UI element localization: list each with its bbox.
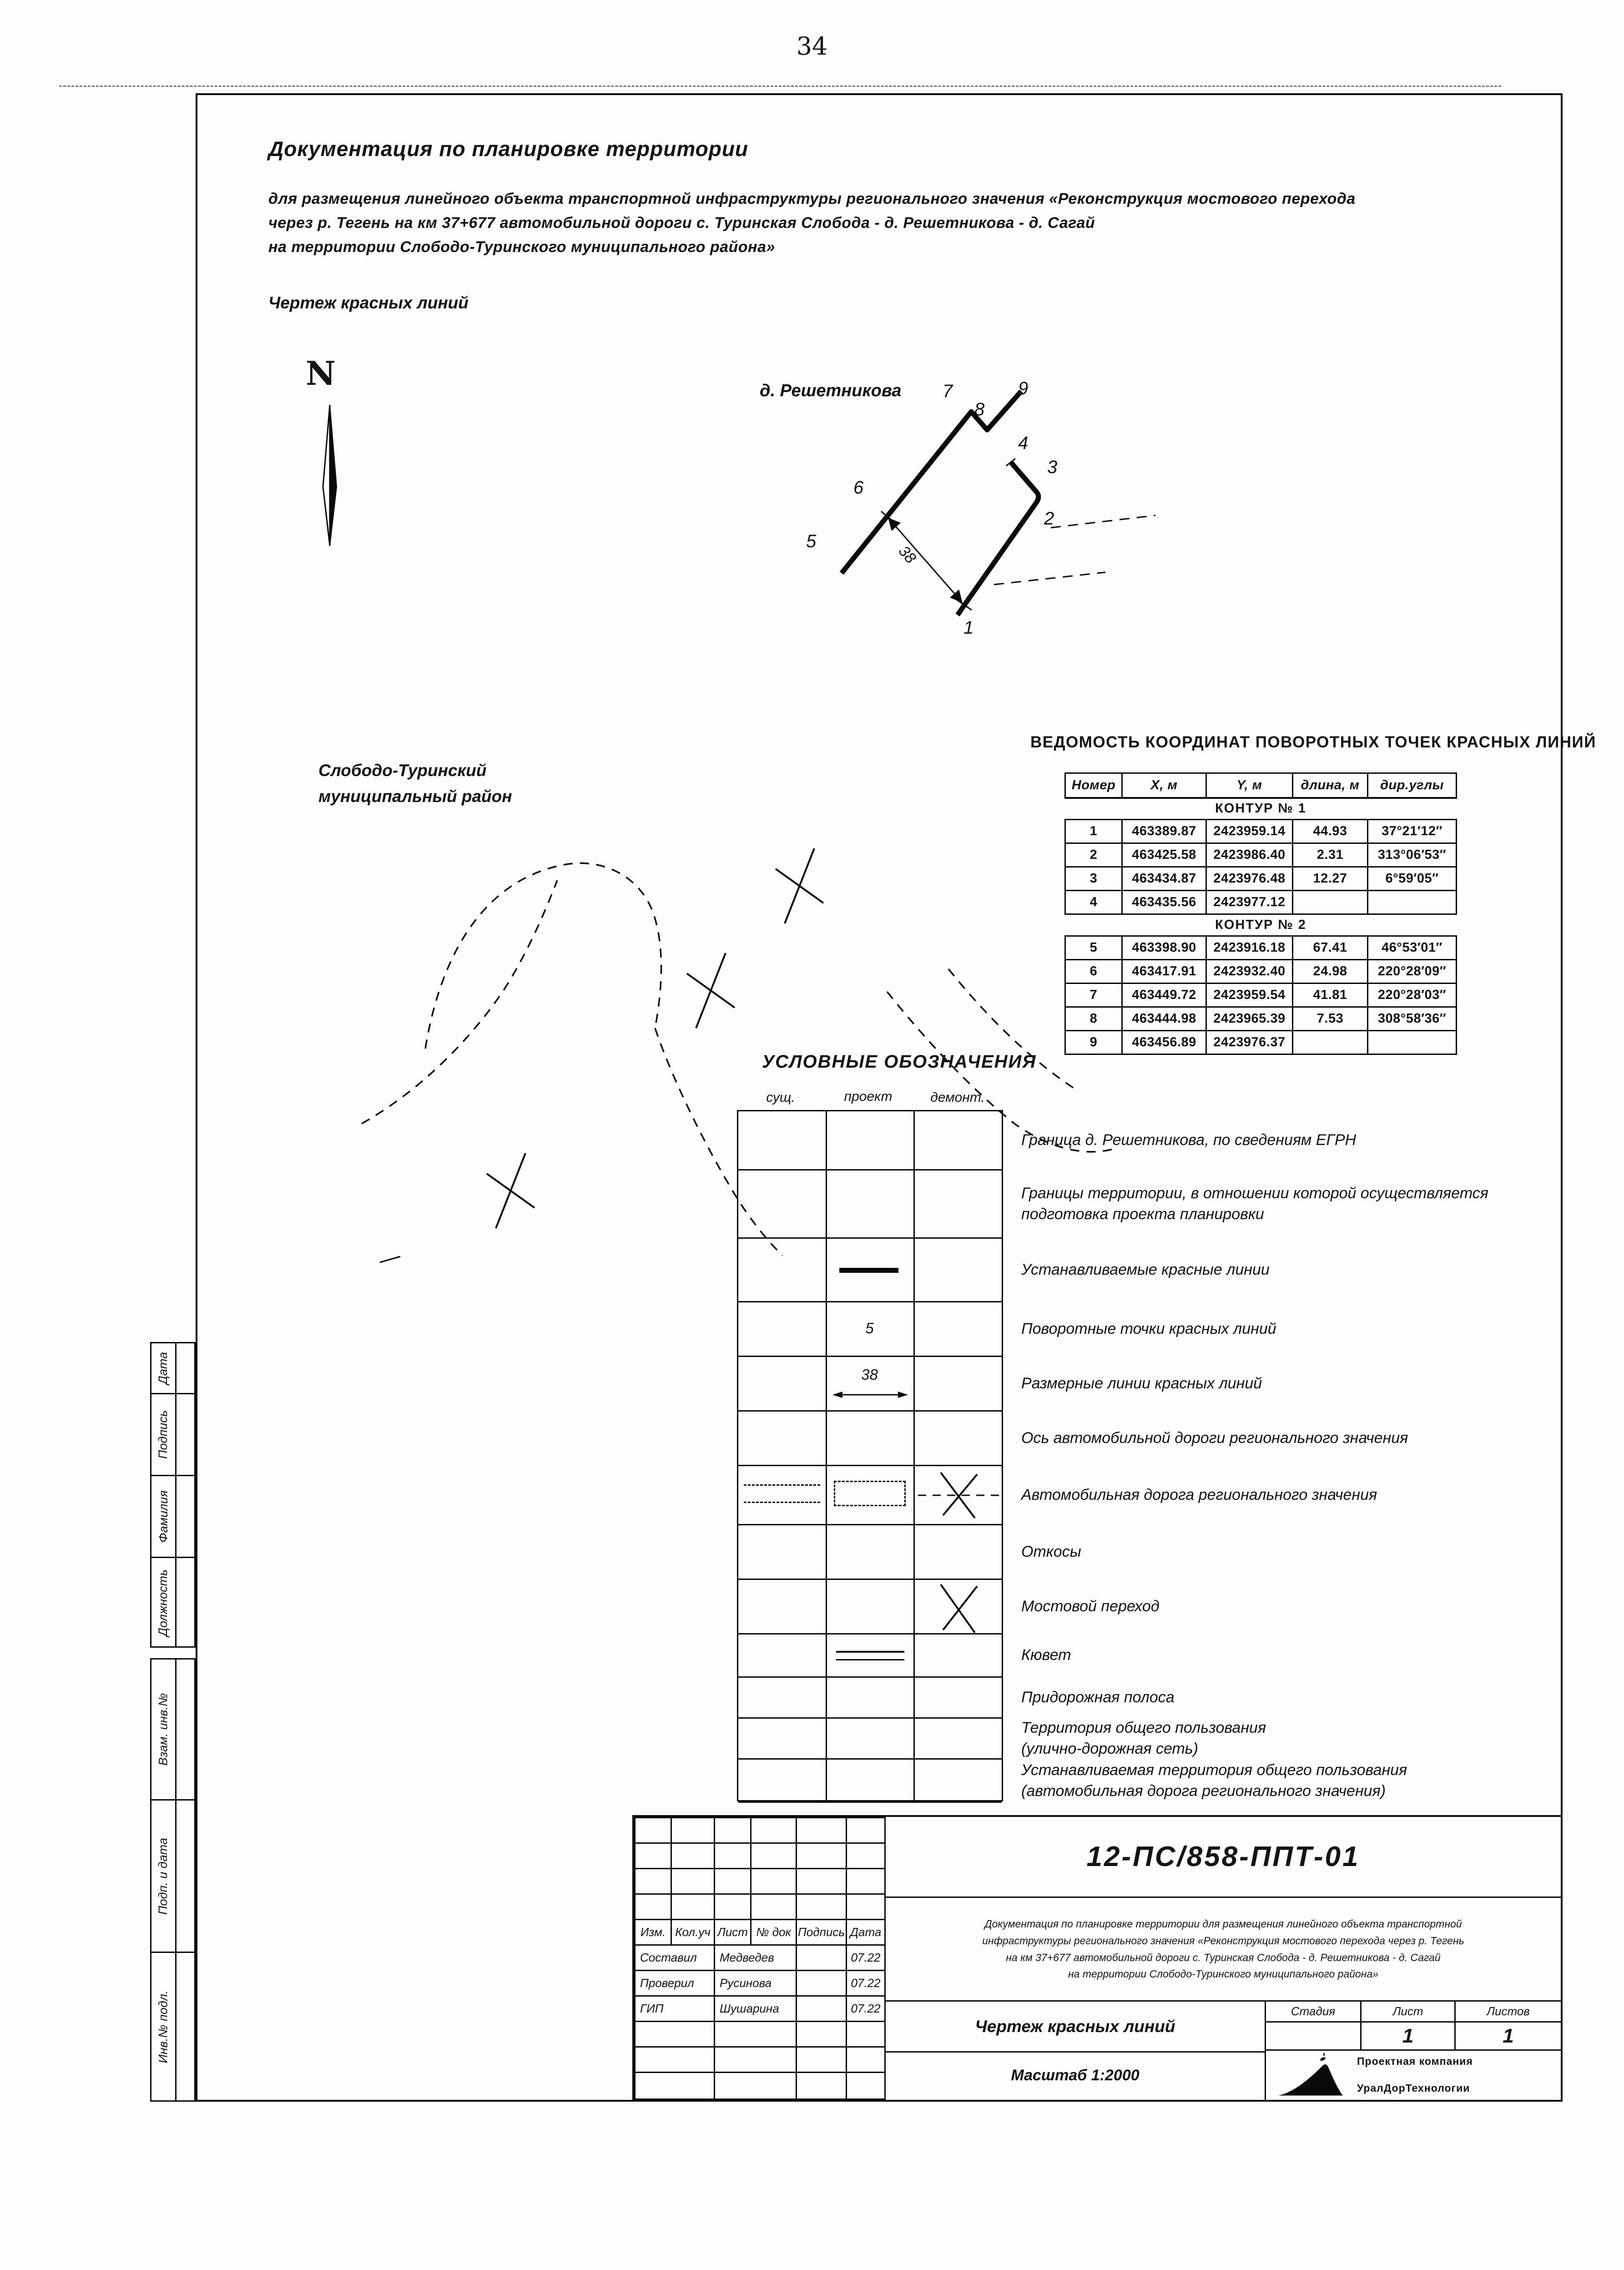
document-subtitle-line2: через р. Тегень на км 37+677 автомобильн…: [268, 214, 1095, 232]
stamp-drawing-title-wrap: Чертеж красных линий: [886, 2002, 1265, 2053]
cell: [1293, 891, 1368, 914]
cell: 8: [1065, 1007, 1122, 1031]
cell: 2423916.18: [1206, 936, 1293, 960]
table-row: 7 463449.72 2423959.54 41.81 220°28′03″: [1065, 984, 1457, 1007]
drawing-name: Чертеж красных линий: [268, 293, 469, 313]
district-label-line1: Слободо-Туринский: [318, 757, 512, 783]
road-existing-symbol-bottom: [744, 1502, 820, 1503]
point-label-9: 9: [1018, 378, 1028, 399]
ditch-symbol-top: [836, 1651, 904, 1653]
sidebar-cell: Взам. инв.№: [151, 1660, 175, 1799]
legend-grid-row: [738, 1412, 1002, 1466]
legend-grid-row: [738, 1634, 1002, 1678]
stage-values-row: 1 1: [1266, 2023, 1561, 2051]
legend-label: Придорожная полоса: [1021, 1687, 1175, 1708]
legend-label-line1: Устанавливаемая территория общего пользо…: [1021, 1760, 1407, 1781]
boundary-dashed-line-2: [994, 572, 1105, 585]
rev-header-list: Лист: [715, 1920, 751, 1945]
empty-row: [635, 1869, 885, 1894]
sheet-header: Лист: [1360, 2002, 1454, 2021]
turn-point-symbol: 5: [826, 1320, 913, 1337]
cell: 6°59′05″: [1368, 867, 1457, 891]
cell: 1: [1065, 820, 1122, 843]
road-dashed-2: [362, 880, 557, 1124]
document-sheet: 34 Документация по планировке территории…: [0, 0, 1624, 2270]
company-line1: Проектная компания: [1357, 2055, 1473, 2068]
point-label-2: 2: [1044, 509, 1054, 529]
cell: 463417.91: [1122, 960, 1206, 984]
sidebar-row-date: Дата: [151, 1343, 194, 1394]
contour-1-section-row: КОНТУР № 1: [1065, 798, 1457, 820]
company-cell: Проектная компания УралДорТехнологии: [1266, 2051, 1561, 2098]
north-letter: N: [306, 354, 336, 393]
road-project-symbol: [834, 1481, 906, 1506]
sidebar-cell: Дата: [151, 1343, 175, 1393]
cell: 463425.58: [1122, 843, 1206, 867]
legend-grid-vline-2: [913, 1111, 915, 1800]
cell: 7.53: [1293, 1007, 1368, 1031]
map-stray-dash: [380, 1256, 400, 1262]
legend-label-line2: (автомобильная дорога регионального знач…: [1021, 1781, 1407, 1801]
sidebar-label-signature: Подпись: [156, 1410, 171, 1459]
legend-label-line2: подготовка проекта планировки: [1021, 1204, 1488, 1225]
empty-row: [635, 1894, 885, 1920]
legend-label: Автомобильная дорога регионального значе…: [1021, 1484, 1377, 1505]
cell: 220°28′09″: [1368, 960, 1457, 984]
legend-grid-row: [738, 1678, 1002, 1719]
red-lines-plan: [705, 373, 1205, 673]
legend-label: Граница д. Решетникова, по сведениям ЕГР…: [1021, 1130, 1356, 1150]
sidebar-cell: Подпись: [151, 1394, 175, 1475]
stage-header-row: Стадия Лист Листов: [1266, 2002, 1561, 2023]
dimension-symbol-value: 38: [826, 1366, 913, 1383]
dimension-symbol-arrow: [832, 1388, 909, 1402]
stamp-drawing-title: Чертеж красных линий: [975, 2017, 1175, 2036]
legend-label: Устанавливаемая территория общего пользо…: [1021, 1760, 1407, 1801]
cell: 463449.72: [1122, 984, 1206, 1007]
coords-header-row: Номер Х, м Y, м длина, м дир.углы: [1065, 773, 1457, 798]
signature-date: 07.22: [847, 1996, 885, 2022]
road-dashed-1: [425, 863, 661, 1049]
sidebar-cell: Должность: [151, 1558, 175, 1648]
sidebar-row-signature: Подпись: [151, 1394, 194, 1476]
sidebar-label-vzam-inv: Взам. инв.№: [156, 1693, 171, 1766]
point-label-7: 7: [943, 381, 953, 402]
legend-label: Поворотные точки красных линий: [1021, 1318, 1276, 1339]
cell: [1293, 1031, 1368, 1054]
legend-label-line1: Границы территории, в отношении которой …: [1021, 1183, 1488, 1204]
north-arrow-icon: [298, 400, 362, 550]
signature-row: ГИП Шушарина 07.22: [635, 1996, 885, 2022]
sidebar-cell: Подп. и дата: [151, 1801, 175, 1952]
sheets-total-header: Листов: [1454, 2002, 1561, 2021]
doc-number-cell: 12-ПС/858-ППТ-01: [884, 1817, 1561, 1898]
table-row: 1 463389.87 2423959.14 44.93 37°21′12″: [1065, 820, 1457, 843]
empty-row: [635, 1843, 885, 1869]
cell: 2423932.40: [1206, 960, 1293, 984]
legend-label: Ось автомобильной дороги регионального з…: [1021, 1428, 1408, 1448]
sidebar-row-surname: Фамилия: [151, 1476, 194, 1558]
company-logo-icon: [1272, 2052, 1350, 2098]
cell: 463398.90: [1122, 936, 1206, 960]
cell: 2423977.12: [1206, 891, 1293, 914]
district-label-line2: муниципальный район: [318, 783, 512, 809]
coords-header-x: Х, м: [1122, 773, 1206, 798]
signature-sign: [797, 1996, 847, 2022]
rev-header-koluch: Кол.уч: [671, 1920, 715, 1945]
contour-2-title: КОНТУР № 2: [1065, 914, 1457, 936]
cell: [1368, 891, 1457, 914]
empty-row: [635, 2022, 885, 2047]
sidebar-row-inv: Инв.№ подл.: [151, 1953, 194, 2100]
company-line2: УралДорТехнологии: [1357, 2082, 1473, 2094]
sheets-total: 1: [1454, 2023, 1561, 2049]
document-subtitle-line3: на территории Слободо-Туринского муницип…: [268, 238, 775, 256]
signature-sign: [797, 1945, 847, 1971]
stage-block: Стадия Лист Листов 1 1 Проектная компани…: [1265, 2002, 1561, 2100]
legend-grid-row: [738, 1357, 1002, 1412]
legend-col-demolish: демонт.: [912, 1090, 1003, 1105]
doc-description-line4: на территории Слободо-Туринского муницип…: [886, 1966, 1561, 1982]
cell: 2423959.54: [1206, 984, 1293, 1007]
point-label-3: 3: [1047, 457, 1057, 478]
coords-table: Номер Х, м Y, м длина, м дир.углы КОНТУР…: [1064, 772, 1457, 1055]
legend-title: УСЛОВНЫЕ ОБОЗНАЧЕНИЯ: [762, 1052, 1036, 1072]
empty-row: [635, 1818, 885, 1843]
doc-description-line3: на км 37+677 автомобильной дороги с. Тур…: [886, 1949, 1561, 1966]
road-demolish-symbol: [916, 1470, 1002, 1521]
sidebar-cell: Инв.№ подл.: [151, 1953, 175, 2100]
legend-grid-row: [738, 1170, 1002, 1239]
cell: 41.81: [1293, 984, 1368, 1007]
contour-1-title: КОНТУР № 1: [1065, 798, 1457, 820]
cell: 2423976.48: [1206, 867, 1293, 891]
table-row: 2 463425.58 2423986.40 2.31 313°06′53″: [1065, 843, 1457, 867]
signature-role: Проверил: [635, 1971, 715, 1996]
sidebar-row-podp: Подп. и дата: [151, 1801, 194, 1953]
stage-value: [1266, 2023, 1360, 2049]
sheet-number: 1: [1360, 2023, 1454, 2049]
cell: 2423959.14: [1206, 820, 1293, 843]
signature-date: 07.22: [847, 1945, 885, 1971]
rev-header-data: Дата: [847, 1920, 885, 1945]
red-line-contour-2: [842, 391, 1021, 573]
point-label-5: 5: [806, 531, 816, 552]
legend-grid-row: [738, 1525, 1002, 1580]
cell: 6: [1065, 960, 1122, 984]
signature-name: Русинова: [715, 1971, 797, 1996]
revision-table: Изм. Кол.уч Лист № док Подпись Дата Сост…: [634, 1817, 886, 2100]
document-title: Документация по планировке территории: [268, 136, 748, 161]
signature-sign: [797, 1971, 847, 1996]
revision-header-row: Изм. Кол.уч Лист № док Подпись Дата: [635, 1920, 885, 1945]
cell: 5: [1065, 936, 1122, 960]
cell: 37°21′12″: [1368, 820, 1457, 843]
sidebar-label-podp-data: Подп. и дата: [156, 1837, 171, 1914]
legend-label: Мостовой переход: [1021, 1596, 1160, 1617]
sidebar-label-surname: Фамилия: [156, 1490, 171, 1543]
point-label-6: 6: [853, 478, 863, 498]
doc-description-cell: Документация по планировке территории дл…: [884, 1898, 1561, 2002]
legend-col-project: проект: [824, 1089, 912, 1105]
sidebar-signature-block: Дата Подпись Фамилия Должность: [150, 1342, 196, 1648]
sidebar-label-inv-podl: Инв.№ подл.: [156, 1990, 171, 2063]
cell: 463434.87: [1122, 867, 1206, 891]
title-block: Изм. Кол.уч Лист № док Подпись Дата Сост…: [632, 1815, 1563, 2102]
cell: 44.93: [1293, 820, 1368, 843]
signature-date: 07.22: [847, 1971, 885, 1996]
stamp-scale-wrap: Масштаб 1:2000: [886, 2053, 1265, 2098]
page-number: 34: [0, 32, 1624, 61]
cell: 67.41: [1293, 936, 1368, 960]
coords-header-angles: дир.углы: [1368, 773, 1457, 798]
ditch-symbol-bottom: [836, 1659, 904, 1660]
bridge-x-mark-1b: [776, 869, 823, 903]
legend-grid-row: [738, 1760, 1002, 1803]
cell: 24.98: [1293, 960, 1368, 984]
rev-header-podpis: Подпись: [797, 1920, 847, 1945]
doc-number: 12-ПС/858-ППТ-01: [1087, 1841, 1360, 1873]
contour-2-section-row: КОНТУР № 2: [1065, 914, 1457, 936]
signature-row: Составил Медведев 07.22: [635, 1945, 885, 1971]
signature-name: Шушарина: [715, 1996, 797, 2022]
signature-role: Составил: [635, 1945, 715, 1971]
rev-header-izm: Изм.: [635, 1920, 671, 1945]
table-row: 8 463444.98 2423965.39 7.53 308°58′36″: [1065, 1007, 1457, 1031]
rev-header-dok: № док: [751, 1920, 797, 1945]
bridge-crossing-symbol: [927, 1584, 991, 1634]
cell: 308°58′36″: [1368, 1007, 1457, 1031]
bridge-x-mark-2b: [687, 974, 735, 1008]
company-text: Проектная компания УралДорТехнологии: [1357, 2055, 1473, 2094]
sidebar-cell: Фамилия: [151, 1476, 175, 1557]
cell: 463435.56: [1122, 891, 1206, 914]
table-row: 3 463434.87 2423976.48 12.27 6°59′05″: [1065, 867, 1457, 891]
cell: 2.31: [1293, 843, 1368, 867]
red-line-contour-1: [958, 462, 1039, 615]
signature-row: Проверил Русинова 07.22: [635, 1971, 885, 1996]
coords-header-length: длина, м: [1293, 773, 1368, 798]
cell: 46°53′01″: [1368, 936, 1457, 960]
cell: 9: [1065, 1031, 1122, 1054]
doc-description-line1: Документация по планировке территории дл…: [886, 1916, 1561, 1932]
sidebar-label-position: Должность: [156, 1569, 171, 1636]
legend-grid-vline-1: [826, 1111, 827, 1800]
signature-name: Медведев: [715, 1945, 797, 1971]
cell: 7: [1065, 984, 1122, 1007]
cell: 3: [1065, 867, 1122, 891]
coords-table-title: ВЕДОМОСТЬ КООРДИНАТ ПОВОРОТНЫХ ТОЧЕК КРА…: [1030, 733, 1596, 752]
legend-label: Размерные линии красных линий: [1021, 1373, 1262, 1394]
legend-label: Границы территории, в отношении которой …: [1021, 1183, 1488, 1225]
point-label-1: 1: [963, 618, 973, 638]
point-label-4: 4: [1018, 433, 1028, 454]
legend-label: Территория общего пользования (улично-до…: [1021, 1717, 1266, 1759]
point-label-8: 8: [974, 399, 984, 420]
legend-label: Устанавливаемые красные линии: [1021, 1259, 1270, 1280]
table-row: 4 463435.56 2423977.12: [1065, 891, 1457, 914]
cell: 220°28′03″: [1368, 984, 1457, 1007]
legend-label: Кювет: [1021, 1644, 1071, 1665]
table-row: 6 463417.91 2423932.40 24.98 220°28′09″: [1065, 960, 1457, 984]
cell: 463389.87: [1122, 820, 1206, 843]
cell: 4: [1065, 891, 1122, 914]
cell: 2: [1065, 843, 1122, 867]
coords-header-number: Номер: [1065, 773, 1122, 798]
cell: 2423986.40: [1206, 843, 1293, 867]
empty-row: [635, 2047, 885, 2073]
legend-symbol-grid: 5 38: [737, 1110, 1003, 1801]
sidebar-label-date: Дата: [156, 1352, 171, 1384]
road-existing-symbol-top: [744, 1484, 820, 1486]
cell: 2423965.39: [1206, 1007, 1293, 1031]
cell: 463456.89: [1122, 1031, 1206, 1054]
table-row: 9 463456.89 2423976.37: [1065, 1031, 1457, 1054]
red-line-symbol: [839, 1268, 898, 1273]
stamp-scale: Масштаб 1:2000: [1011, 2067, 1139, 2084]
document-subtitle-line1: для размещения линейного объекта транспо…: [268, 190, 1356, 208]
sidebar-row-position: Должность: [151, 1558, 194, 1648]
sidebar-row-vzam: Взам. инв.№: [151, 1660, 194, 1801]
cell: [1368, 1031, 1457, 1054]
legend-grid-row: [738, 1719, 1002, 1760]
sidebar-inventory-block: Взам. инв.№ Подп. и дата Инв.№ подл.: [150, 1658, 196, 2102]
cell: 12.27: [1293, 867, 1368, 891]
top-margin-line: [59, 86, 1501, 87]
boundary-dashed-line-1: [1051, 515, 1155, 528]
drawing-title-cell: Чертеж красных линий Масштаб 1:2000: [884, 2002, 1265, 2100]
doc-description-line2: инфраструктуры регионального значения «Р…: [886, 1932, 1561, 1949]
district-label: Слободо-Туринский муниципальный район: [318, 757, 512, 810]
coords-header-y: Y, м: [1206, 773, 1293, 798]
table-row: 5 463398.90 2423916.18 67.41 46°53′01″: [1065, 936, 1457, 960]
cell: 2423976.37: [1206, 1031, 1293, 1054]
legend-col-existing: сущ.: [737, 1090, 824, 1105]
legend-label-line2: (улично-дорожная сеть): [1021, 1738, 1266, 1759]
signature-role: ГИП: [635, 1996, 715, 2022]
cell: 463444.98: [1122, 1007, 1206, 1031]
legend-label: Откосы: [1021, 1541, 1081, 1562]
stage-header: Стадия: [1266, 2002, 1360, 2021]
legend-grid-row: [738, 1111, 1002, 1170]
cell: 313°06′53″: [1368, 843, 1457, 867]
legend-label-line1: Территория общего пользования: [1021, 1717, 1266, 1738]
bridge-x-mark-3b: [487, 1174, 535, 1208]
empty-row: [635, 2073, 885, 2099]
